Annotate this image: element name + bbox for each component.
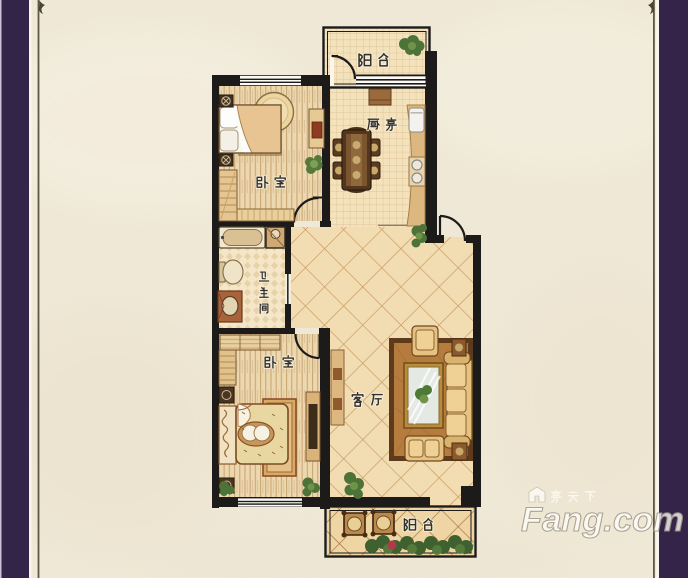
svg-text:Fang.com: Fang.com (521, 501, 684, 539)
